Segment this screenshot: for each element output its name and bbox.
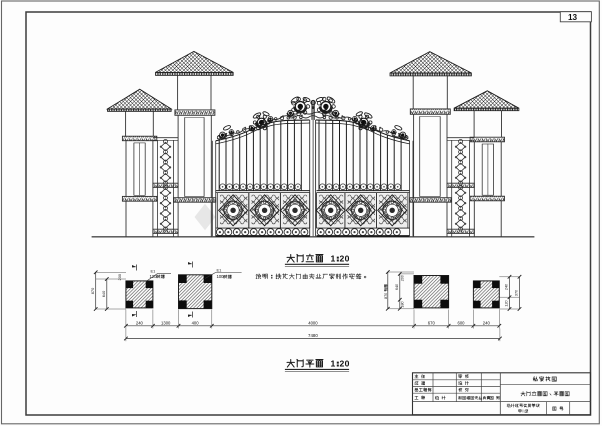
svg-text:1: 1 [331,358,336,368]
svg-text:240: 240 [136,320,144,325]
svg-text:20: 20 [340,358,350,368]
svg-text:4000: 4000 [308,320,318,325]
svg-text:370: 370 [515,290,519,296]
svg-text:1300: 1300 [161,320,171,325]
svg-text:200: 200 [117,273,122,280]
svg-text:640: 640 [101,290,106,297]
svg-text:1: 1 [331,253,336,263]
svg-text:670: 670 [428,320,436,325]
svg-text:120: 120 [505,300,509,306]
svg-text:I: I [522,409,523,414]
svg-text:20: 20 [340,253,350,263]
svg-text:870: 870 [90,287,95,294]
svg-text:200: 200 [401,275,405,281]
svg-text:640: 640 [395,284,399,290]
svg-text:240: 240 [483,320,491,325]
svg-text:180: 180 [401,301,405,307]
svg-text:13: 13 [568,13,578,22]
svg-text:400: 400 [192,320,200,325]
svg-text:E1: E1 [151,269,157,274]
svg-text:240: 240 [505,284,509,290]
svg-text:E1: E1 [217,268,223,273]
svg-text:7480: 7480 [308,333,318,338]
svg-text:870: 870 [384,293,388,299]
svg-text:600: 600 [458,320,466,325]
